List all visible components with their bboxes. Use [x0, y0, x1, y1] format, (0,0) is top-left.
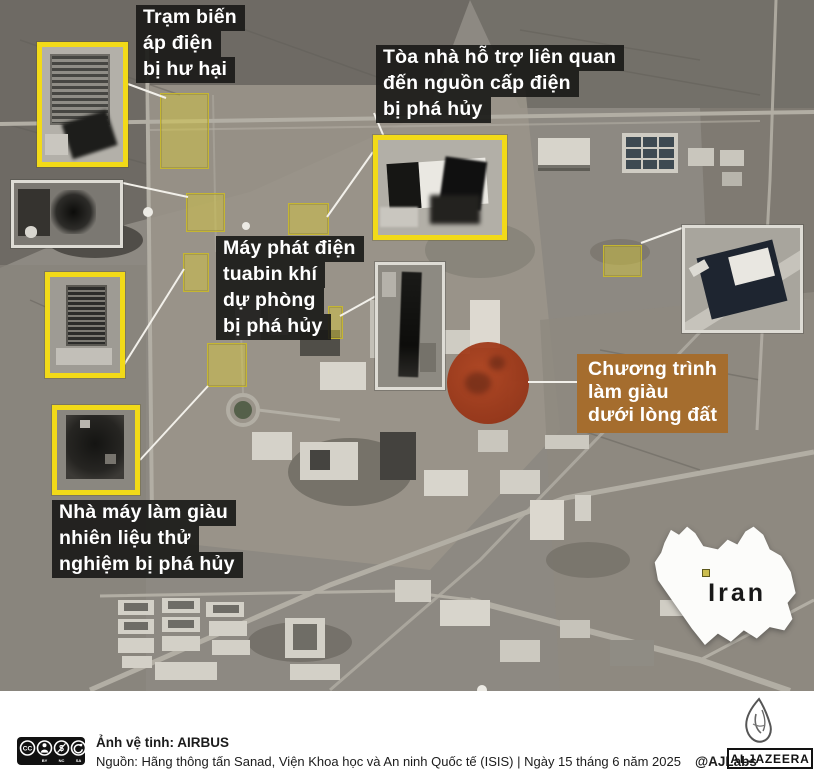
callout-line: Nhà máy làm giàu	[52, 500, 236, 526]
satellite-image: Trạm biến áp điện bị hư hại Tòa nhà hỗ t…	[0, 0, 814, 691]
callout-line: bị hư hại	[136, 57, 235, 83]
inset-facility-building	[45, 272, 125, 378]
underground-program-marker	[447, 342, 529, 424]
inset-support-building	[373, 135, 507, 240]
callout-line: Máy phát điện	[216, 236, 364, 262]
iran-map: Iran	[645, 512, 807, 658]
infographic: Trạm biến áp điện bị hư hại Tòa nhà hỗ t…	[0, 0, 814, 783]
aljazeera-logo-icon	[742, 696, 776, 746]
callout-line: tuabin khí	[216, 262, 325, 288]
cc-license-badge: CC $ BY NC SA	[17, 737, 85, 765]
callout-turbine-generator: Máy phát điện tuabin khí dự phòng bị phá…	[216, 236, 364, 340]
inset-support-building-photo	[378, 140, 502, 235]
natanz-location-marker	[702, 569, 710, 577]
footer-credits: Ảnh vệ tinh: AIRBUS Nguồn: Hãng thông tấ…	[96, 735, 757, 769]
callout-substation: Trạm biến áp điện bị hư hại	[136, 5, 245, 83]
callout-line: Tòa nhà hỗ trợ liên quan	[376, 45, 624, 71]
cc-icon: CC	[23, 745, 33, 752]
damage-highlight-box	[183, 253, 209, 292]
damage-highlight-substation-yard	[160, 93, 209, 169]
damage-highlight-box	[288, 203, 329, 235]
callout-line: Trạm biến	[136, 5, 245, 31]
license-label-by: BY	[42, 758, 48, 763]
inset-facility-building-photo	[50, 277, 120, 373]
callout-support-building: Tòa nhà hỗ trợ liên quan đến nguồn cấp đ…	[376, 45, 624, 123]
satellite-credit: Ảnh vệ tinh: AIRBUS	[96, 735, 757, 750]
callout-line: áp điện	[136, 31, 221, 57]
inset-fuel-plant-photo	[57, 410, 135, 490]
inset-substation	[37, 42, 128, 167]
callout-line: bị phá hủy	[376, 97, 491, 123]
license-label-sa: SA	[76, 758, 82, 763]
callout-underground-program: Chương trình làm giàu dưới lòng đất	[577, 354, 728, 433]
inset-dark-building-photo	[685, 228, 800, 330]
callout-line: làm giàu	[588, 381, 669, 404]
inset-dark-building	[682, 225, 803, 333]
damage-highlight-box	[603, 245, 642, 277]
license-label-nc: NC	[59, 758, 65, 763]
damage-highlight-box	[186, 193, 225, 232]
callout-line: dưới lòng đất	[588, 404, 717, 427]
inset-damaged-building-photo	[14, 183, 120, 245]
callout-line: bị phá hủy	[216, 314, 331, 340]
callout-line: Chương trình	[588, 358, 717, 381]
source-text: Nguồn: Hãng thông tấn Sanad, Viện Khoa h…	[96, 754, 681, 769]
callout-line: dự phòng	[216, 288, 324, 314]
country-label: Iran	[708, 579, 766, 608]
inset-generator-strip-photo	[378, 265, 442, 387]
footer: CC $ BY NC SA Ảnh vệ tinh: AIRBUS N	[0, 691, 814, 783]
damage-highlight-box	[207, 343, 247, 387]
inset-substation-photo	[42, 47, 123, 162]
inset-fuel-plant	[52, 405, 140, 495]
callout-line: nhiên liệu thử	[52, 526, 199, 552]
aljazeera-wordmark: ALJAZEERA	[727, 748, 813, 769]
callout-line: đến nguồn cấp điện	[376, 71, 579, 97]
inset-damaged-building	[11, 180, 123, 248]
callout-fuel-plant: Nhà máy làm giàu nhiên liệu thử nghiệm b…	[52, 500, 243, 578]
callout-line: nghiệm bị phá hủy	[52, 552, 243, 578]
inset-generator-strip	[375, 262, 445, 390]
